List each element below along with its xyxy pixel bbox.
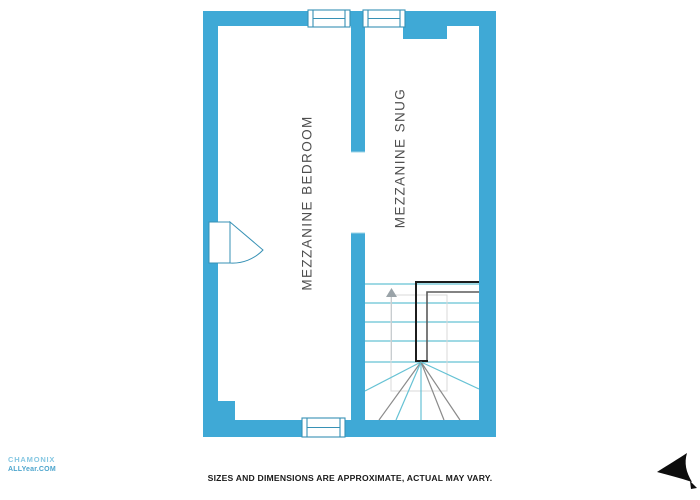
stair-direction-arrow-icon <box>386 288 397 297</box>
divider-wall-upper <box>351 26 365 152</box>
stair-void-outline <box>391 295 447 391</box>
window-bottom <box>302 418 345 437</box>
door-opening <box>209 222 230 263</box>
wall-step-bottom-left <box>203 401 235 420</box>
floor-plan-canvas: MEZZANINE BEDROOM MEZZANINE SNUG SIZES A… <box>0 0 700 500</box>
disclaimer-text: SIZES AND DIMENSIONS ARE APPROXIMATE, AC… <box>208 473 493 483</box>
room-label-snug: MEZZANINE SNUG <box>393 88 408 228</box>
door-swing-arc <box>230 222 263 263</box>
cursor-arrow-icon <box>657 453 697 489</box>
room-label-bedroom: MEZZANINE BEDROOM <box>300 115 315 290</box>
window-top-right <box>363 10 405 27</box>
right-wall <box>479 11 496 437</box>
staircase <box>365 282 479 420</box>
stair-treads <box>365 284 479 362</box>
left-wall <box>203 11 218 401</box>
stair-winder <box>365 362 421 391</box>
watermark-line2: ALLYear.COM <box>8 466 56 473</box>
divider-wall-lower <box>351 233 365 420</box>
wall-notch-top-right <box>403 26 447 39</box>
walls <box>203 11 496 437</box>
floor-plan: MEZZANINE BEDROOM MEZZANINE SNUG SIZES A… <box>0 0 700 500</box>
window-top-left <box>308 10 350 27</box>
door <box>209 222 263 263</box>
divider-opening-caps <box>351 152 365 233</box>
watermark-logo: CHAMONIX ALLYear.COM <box>8 455 56 473</box>
watermark-line1: CHAMONIX <box>8 455 55 464</box>
bottom-wall <box>203 420 496 437</box>
